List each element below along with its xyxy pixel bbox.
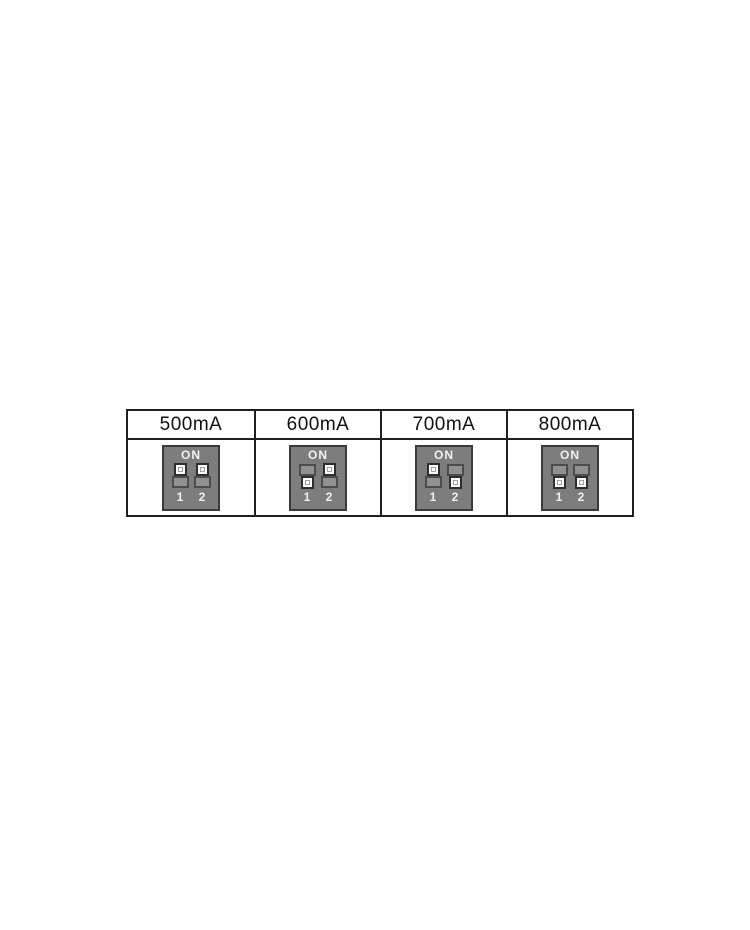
switch-knob-icon: [301, 476, 314, 489]
column-label-700ma: 700mA: [413, 414, 476, 436]
dip-switch-block-600ma: ON 1 2: [289, 445, 347, 511]
switch-slot: [321, 476, 338, 488]
dip-switch-2: [194, 463, 211, 489]
switch-knob-icon: [575, 476, 588, 489]
dip-switch-2: [573, 463, 590, 489]
switch-knob-icon: [553, 476, 566, 489]
dip-switch-row: [299, 463, 338, 489]
header-cell-800ma: 800mA: [506, 411, 632, 440]
knob-dot-icon: [200, 467, 205, 472]
dip-switch-2: [447, 463, 464, 489]
dip-switch-1: [172, 463, 189, 489]
switch-slot: [573, 464, 590, 476]
switch-slot: [172, 476, 189, 488]
dip-switch-2: [321, 463, 338, 489]
knob-dot-icon: [327, 467, 332, 472]
switch-knob-icon: [323, 463, 336, 476]
switch-number-2: 2: [194, 491, 211, 504]
switch-number-2: 2: [447, 491, 464, 504]
switch-slot: [425, 476, 442, 488]
switch-slot: [447, 464, 464, 476]
column-label-600ma: 600mA: [287, 414, 350, 436]
switch-number-1: 1: [172, 491, 189, 504]
body-cell-600ma: ON 1 2: [254, 440, 380, 515]
dip-switch-1: [551, 463, 568, 489]
dip-switch-numbers: 1 2: [551, 491, 590, 504]
switch-number-1: 1: [299, 491, 316, 504]
page: 500mA 600mA 700mA 800mA ON: [0, 0, 750, 930]
body-cell-700ma: ON 1 2: [380, 440, 506, 515]
switch-knob-icon: [427, 463, 440, 476]
dip-switch-block-800ma: ON 1 2: [541, 445, 599, 511]
dip-on-label: ON: [308, 448, 328, 463]
dip-switch-1: [425, 463, 442, 489]
switch-slot: [551, 464, 568, 476]
knob-dot-icon: [178, 467, 183, 472]
body-cell-500ma: ON 1 2: [128, 440, 254, 515]
switch-knob-icon: [174, 463, 187, 476]
dip-switch-block-500ma: ON 1 2: [162, 445, 220, 511]
switch-number-2: 2: [573, 491, 590, 504]
header-cell-600ma: 600mA: [254, 411, 380, 440]
dip-switch-numbers: 1 2: [425, 491, 464, 504]
header-cell-500ma: 500mA: [128, 411, 254, 440]
body-cell-800ma: ON 1 2: [506, 440, 632, 515]
knob-dot-icon: [431, 467, 436, 472]
switch-number-2: 2: [321, 491, 338, 504]
dip-on-label: ON: [434, 448, 454, 463]
dip-switch-block-700ma: ON 1 2: [415, 445, 473, 511]
knob-dot-icon: [579, 480, 584, 485]
knob-dot-icon: [557, 480, 562, 485]
column-label-500ma: 500mA: [160, 414, 223, 436]
switch-knob-icon: [449, 476, 462, 489]
dip-switch-settings-table: 500mA 600mA 700mA 800mA ON: [126, 409, 634, 517]
dip-on-label: ON: [181, 448, 201, 463]
dip-switch-numbers: 1 2: [172, 491, 211, 504]
switch-slot: [299, 464, 316, 476]
knob-dot-icon: [453, 480, 458, 485]
switch-number-1: 1: [551, 491, 568, 504]
header-cell-700ma: 700mA: [380, 411, 506, 440]
switch-knob-icon: [196, 463, 209, 476]
dip-switch-row: [551, 463, 590, 489]
switch-number-1: 1: [425, 491, 442, 504]
dip-switch-numbers: 1 2: [299, 491, 338, 504]
dip-switch-1: [299, 463, 316, 489]
column-label-800ma: 800mA: [539, 414, 602, 436]
dip-switch-row: [425, 463, 464, 489]
dip-switch-row: [172, 463, 211, 489]
dip-on-label: ON: [560, 448, 580, 463]
knob-dot-icon: [305, 480, 310, 485]
switch-slot: [194, 476, 211, 488]
